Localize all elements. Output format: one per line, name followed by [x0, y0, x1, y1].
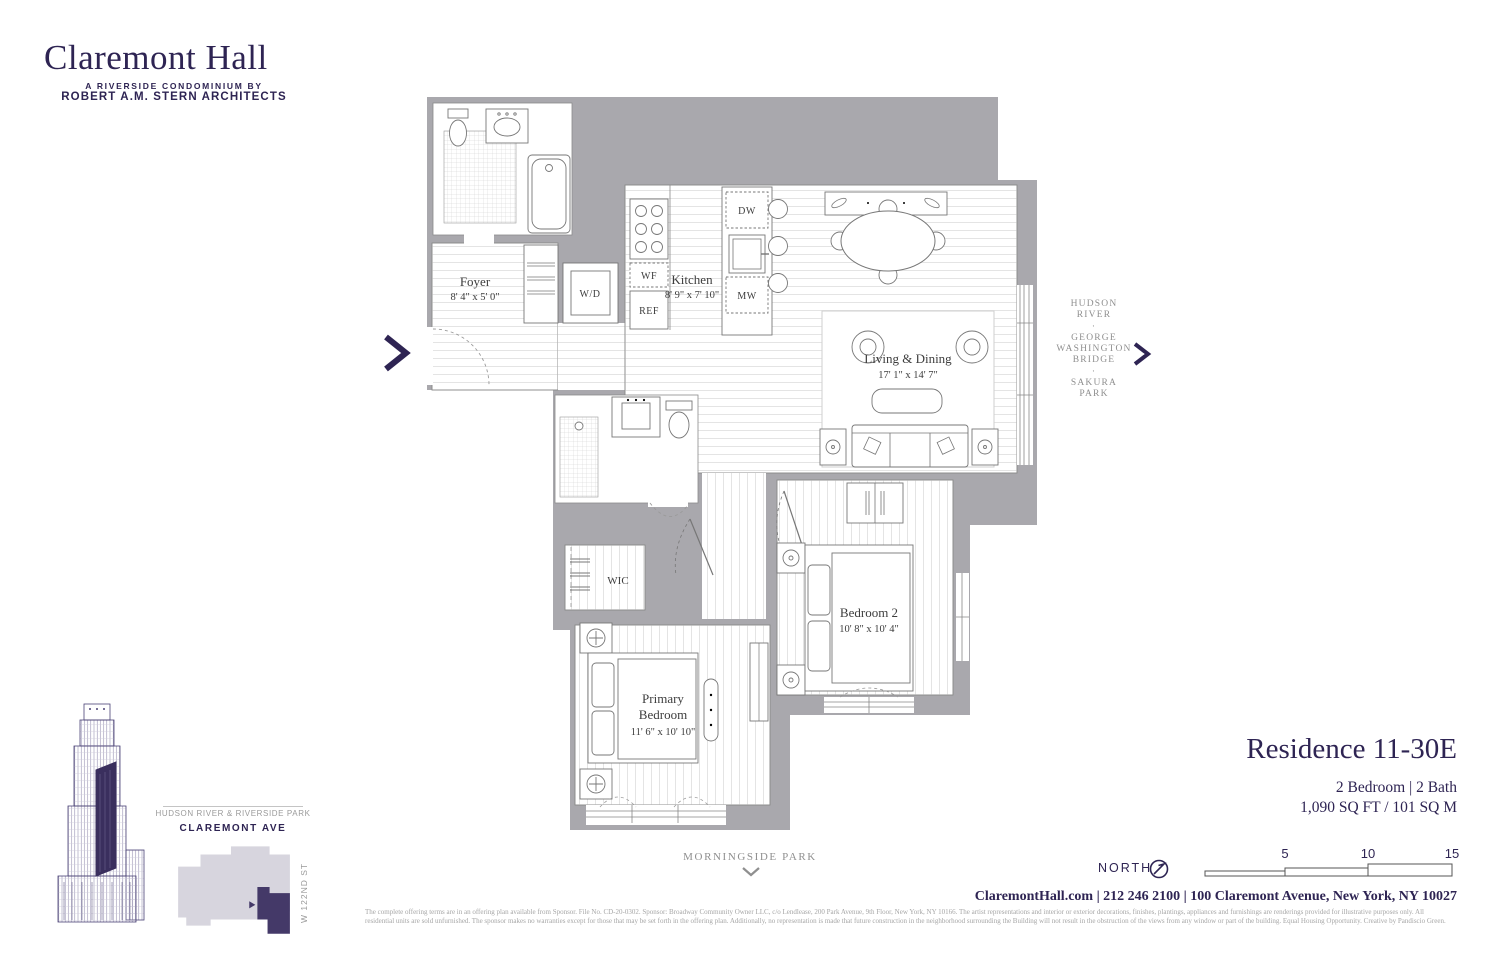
map-divider	[163, 806, 303, 807]
living-window	[1017, 285, 1033, 465]
brand-tagline-1: A RIVERSIDE CONDOMINIUM BY	[44, 81, 304, 91]
svg-text:11' 6" x 10' 10": 11' 6" x 10' 10"	[631, 727, 695, 738]
disclaimer-line-1: The complete offering terms are in an of…	[365, 908, 1462, 917]
svg-text:15: 15	[1445, 846, 1459, 861]
svg-text:Kitchen: Kitchen	[671, 272, 713, 287]
chevron-down-icon	[741, 866, 761, 878]
north-label: NORTH	[1098, 861, 1152, 875]
svg-text:MW: MW	[737, 291, 756, 302]
south-annotation: MORNINGSIDE PARK	[650, 851, 850, 863]
scale-bar: 5 10 15	[1203, 846, 1459, 880]
map-park-label: HUDSON RIVER & RIVERSIDE PARK	[153, 809, 313, 818]
floor-plan: W/D WF REF Kitchen 8' 9" x 7' 10" DW	[420, 95, 1040, 835]
view-chevron-icon	[1132, 341, 1152, 367]
residence-area: 1,090 SQ FT / 101 SQ M	[1057, 799, 1457, 817]
svg-text:REF: REF	[639, 306, 659, 317]
unit-highlight	[257, 887, 290, 934]
view-annotation-right: HUDSON RIVER · GEORGE WASHINGTON BRIDGE …	[1054, 299, 1134, 401]
disclaimer: The complete offering terms are in an of…	[365, 908, 1462, 926]
svg-text:WF: WF	[641, 271, 657, 282]
island-stools	[769, 200, 788, 293]
svg-text:5: 5	[1281, 846, 1288, 861]
floor-plan-sheet: Claremont Hall A RIVERSIDE CONDOMINIUM B…	[0, 0, 1500, 971]
foyer-label: Foyer	[460, 274, 491, 289]
building-illustration	[38, 700, 158, 948]
entry-chevron-icon	[383, 334, 411, 372]
foyer-dims: 8' 4" x 5' 0"	[450, 292, 499, 303]
svg-text:Bedroom: Bedroom	[639, 707, 687, 722]
svg-text:10: 10	[1361, 846, 1375, 861]
svg-text:W/D: W/D	[580, 289, 601, 300]
svg-text:Primary: Primary	[642, 691, 684, 706]
disclaimer-line-2: residential units are sold unfurnished. …	[365, 917, 1462, 926]
residence-config: 2 Bedroom | 2 Bath	[1057, 779, 1457, 797]
residence-title: Residence 11-30E	[957, 733, 1457, 766]
contact-line: ClaremontHall.com | 212 246 2100 | 100 C…	[857, 889, 1457, 905]
map-avenue-label: CLAREMONT AVE	[153, 823, 313, 834]
svg-text:17' 1" x 14' 7": 17' 1" x 14' 7"	[878, 370, 938, 381]
living-area: Living & Dining 17' 1" x 14' 7"	[820, 311, 998, 467]
svg-text:DW: DW	[738, 206, 756, 217]
svg-text:WIC: WIC	[607, 575, 628, 587]
key-plan-map	[170, 840, 296, 934]
foyer-closet	[524, 245, 558, 323]
washer-dryer: W/D	[563, 263, 618, 323]
north-compass-icon	[1147, 857, 1171, 881]
brand-title: Claremont Hall	[44, 38, 304, 78]
svg-text:Bedroom 2: Bedroom 2	[840, 605, 898, 620]
svg-text:Living & Dining: Living & Dining	[864, 351, 952, 366]
svg-text:8' 9" x 7' 10": 8' 9" x 7' 10"	[665, 290, 719, 301]
brand-tagline-2: ROBERT A.M. STERN ARCHITECTS	[44, 91, 304, 103]
svg-text:10' 8" x 10' 4": 10' 8" x 10' 4"	[839, 624, 899, 635]
map-street-label: W 122ND ST	[299, 845, 309, 941]
